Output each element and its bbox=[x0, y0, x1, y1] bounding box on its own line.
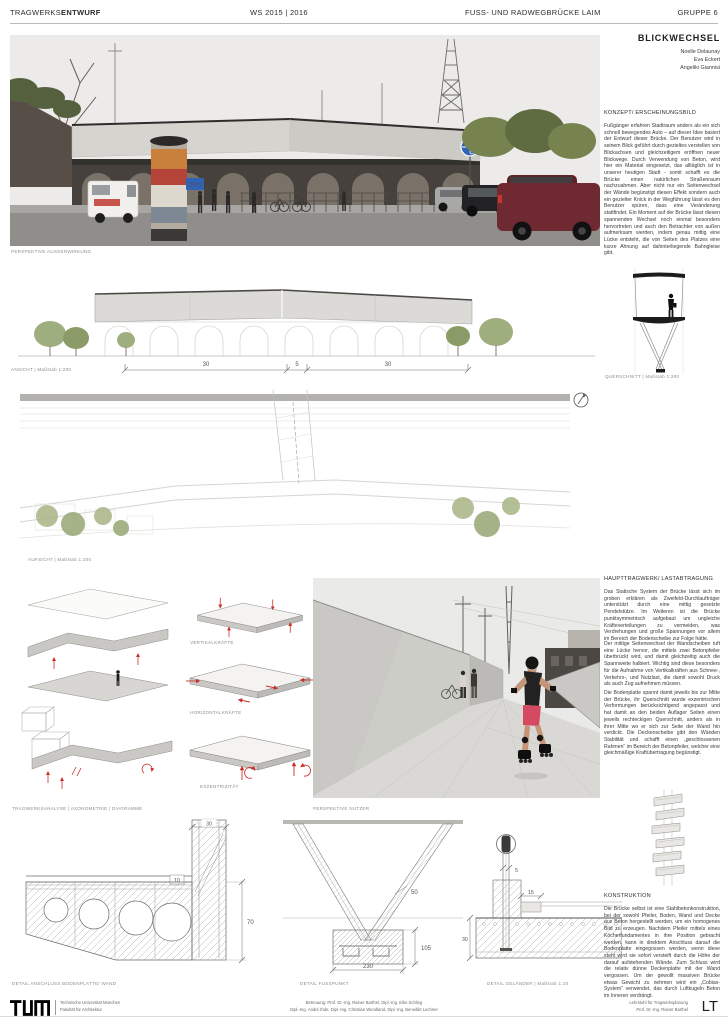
lower-band bbox=[32, 741, 172, 789]
footer-university-block: Technische Universität München Fakultät … bbox=[60, 1000, 120, 1013]
diagram-eccentricity bbox=[186, 724, 314, 782]
caption-detail-wall: DETAIL ANSCHLUSS BODENPLATTE/ WAND bbox=[12, 981, 116, 986]
photo-exterior-perspective: 30m bbox=[10, 35, 600, 246]
track-lines bbox=[20, 408, 570, 428]
svg-text:70: 70 bbox=[247, 920, 254, 926]
wall-section bbox=[192, 820, 226, 960]
svg-text:230: 230 bbox=[363, 964, 374, 970]
detail-slab-wall: 30 10 70 bbox=[20, 818, 260, 976]
footer-university: Technische Universität München bbox=[60, 1000, 120, 1007]
bridge-plan bbox=[273, 390, 315, 484]
person-silhouette bbox=[668, 294, 677, 317]
caption-elevation: ANSICHT | Maßstab 1:200 bbox=[11, 367, 71, 372]
caption-exterior: PERSPEKTIVE AUSSENWIRKUNG bbox=[11, 249, 91, 254]
foundation-block bbox=[333, 930, 403, 964]
project-label: FUSS- UND RADWEGBRÜCKE LAIM bbox=[465, 8, 601, 17]
svg-text:5: 5 bbox=[515, 868, 518, 874]
wall-band bbox=[28, 629, 168, 669]
svg-text:30: 30 bbox=[462, 937, 468, 943]
board-title-bold: ENTWURF bbox=[61, 8, 101, 17]
drawing-cross-section bbox=[628, 266, 703, 378]
wall-development-sketch bbox=[642, 790, 694, 888]
footer-supervision-2: Dipl.-Ing. André Ihde, Dipl.-Ing. Christ… bbox=[214, 1007, 514, 1014]
caption-user: PERSPEKTIVE NUTZER bbox=[313, 806, 369, 811]
drawing-elevation: 30 5 30 bbox=[10, 268, 600, 380]
caption-analysis: TRAGWERKSANALYSE | AXONOMETRIE | DIAGRAM… bbox=[12, 806, 142, 811]
dim-elevation-right: 30 bbox=[385, 362, 392, 368]
label-eccentricity: EXZENTRIZITÄT bbox=[200, 784, 239, 789]
presentation-board: TRAGWERKSENTWURF WS 2015 | 2016 FUSS- UN… bbox=[0, 0, 728, 1024]
tum-logo bbox=[10, 1000, 50, 1016]
photo-user-perspective bbox=[313, 578, 600, 798]
concept-heading: KONZEPT/ ERSCHEINUNGSBILD bbox=[604, 110, 720, 116]
construction-heading: KONSTRUKTION bbox=[604, 893, 720, 899]
author-3: Angeliki Giannisi bbox=[604, 65, 720, 73]
structure-paragraph-2: Der mittige Seitenwechsel der Wandscheib… bbox=[604, 641, 720, 688]
footer-separator bbox=[55, 1000, 56, 1015]
board-title: TRAGWERKSENTWURF bbox=[10, 8, 101, 17]
slab-body bbox=[26, 882, 192, 960]
footer-faculty: Fakultät für Architektur bbox=[60, 1007, 120, 1014]
caption-detail-foot: DETAIL FUSSPUNKT bbox=[300, 981, 349, 986]
structure-paragraph-3: Die Bodenplatte spannt damit jeweils bis… bbox=[604, 690, 720, 757]
floor-plate bbox=[28, 670, 168, 701]
dim-elevation-left: 30 bbox=[203, 362, 210, 368]
floor-slab bbox=[633, 317, 685, 324]
detail-railing: 5 15 30 bbox=[462, 818, 622, 976]
project-title: BLICKWECHSEL bbox=[604, 33, 720, 43]
footer-rule bbox=[0, 1016, 728, 1017]
svg-text:105: 105 bbox=[421, 946, 432, 952]
dim-slab: 30 bbox=[462, 915, 473, 961]
railway-embankment bbox=[20, 394, 570, 401]
lt-logo: LT bbox=[702, 998, 718, 1015]
dim-foundation-height: 105 bbox=[403, 927, 432, 967]
header-rule bbox=[10, 23, 718, 24]
trees-plan bbox=[36, 497, 520, 537]
viaduct-outline bbox=[98, 322, 472, 356]
structure-paragraph-1: Das Statische System der Brücke lässt si… bbox=[604, 589, 720, 643]
white-van bbox=[88, 181, 138, 223]
concept-body: Fußgänger erfahren Stadtraum anders als … bbox=[604, 123, 720, 257]
anchor-block bbox=[493, 880, 521, 918]
author-2: Eva Eckert bbox=[604, 57, 720, 65]
trees-elevation bbox=[34, 318, 513, 356]
caption-section: QUERSCHNITT | Maßstab 1:200 bbox=[605, 374, 679, 379]
footer-supervision-block: Betreuung: Prof. Dr.-Ing. Rainer Barthel… bbox=[214, 1000, 514, 1013]
diagram-horizontal-forces bbox=[186, 656, 314, 704]
construction-body: Die Brücke selbst ist eine Stahlbetonkon… bbox=[604, 906, 720, 1000]
floor-edge bbox=[283, 820, 463, 824]
v-pillars bbox=[293, 824, 453, 940]
footer-chair-block: Lehrstuhl für Tragwerksplanung Prof. Dr.… bbox=[528, 1000, 688, 1013]
drawing-plan bbox=[15, 388, 600, 550]
author-1: Noelle Delaunay bbox=[604, 49, 720, 57]
authors-block: Noelle Delaunay Eva Eckert Angeliki Gian… bbox=[604, 49, 720, 72]
dim-elevation-mid: 5 bbox=[295, 362, 299, 368]
bridge-band-elevation bbox=[95, 290, 472, 324]
speed-sign-label: 30m bbox=[189, 183, 201, 189]
svg-text:30: 30 bbox=[206, 822, 212, 828]
dim-foundation-width: 230 bbox=[330, 964, 406, 974]
board-title-light: TRAGWERKS bbox=[10, 8, 61, 17]
label-vertical-forces: VERTIKALKRÄFTE bbox=[190, 640, 234, 645]
detail-pillar-base: 50 105 230 bbox=[283, 818, 463, 976]
label-horizontal-forces: HORIZONTALKRÄFTE bbox=[190, 710, 241, 715]
deck-plate bbox=[28, 589, 168, 619]
structure-heading: HAUPTTRAGWERK/ LASTABTRAGUNG bbox=[604, 576, 720, 582]
caption-plan: AUFSICHT | Maßstab 1:200 bbox=[28, 557, 91, 562]
footer-chair-2: Prof. Dr.-Ing. Rainer Barthel bbox=[528, 1007, 688, 1014]
pillar-base bbox=[656, 369, 665, 373]
svg-text:15: 15 bbox=[528, 890, 534, 896]
diagram-vertical-forces bbox=[186, 596, 314, 638]
dim-ledge: 15 bbox=[518, 890, 544, 899]
drawing-exploded-axonometry bbox=[18, 583, 178, 801]
caption-detail-railing: DETAIL GELÄNDER | Maßstab 1:20 bbox=[487, 981, 568, 986]
slab-section bbox=[476, 918, 622, 958]
semester-label: WS 2015 | 2016 bbox=[250, 8, 308, 17]
group-label: GRUPPE 6 bbox=[678, 8, 718, 17]
deck-slab bbox=[633, 273, 685, 279]
svg-text:50: 50 bbox=[411, 890, 418, 896]
v-pillar bbox=[640, 322, 678, 370]
